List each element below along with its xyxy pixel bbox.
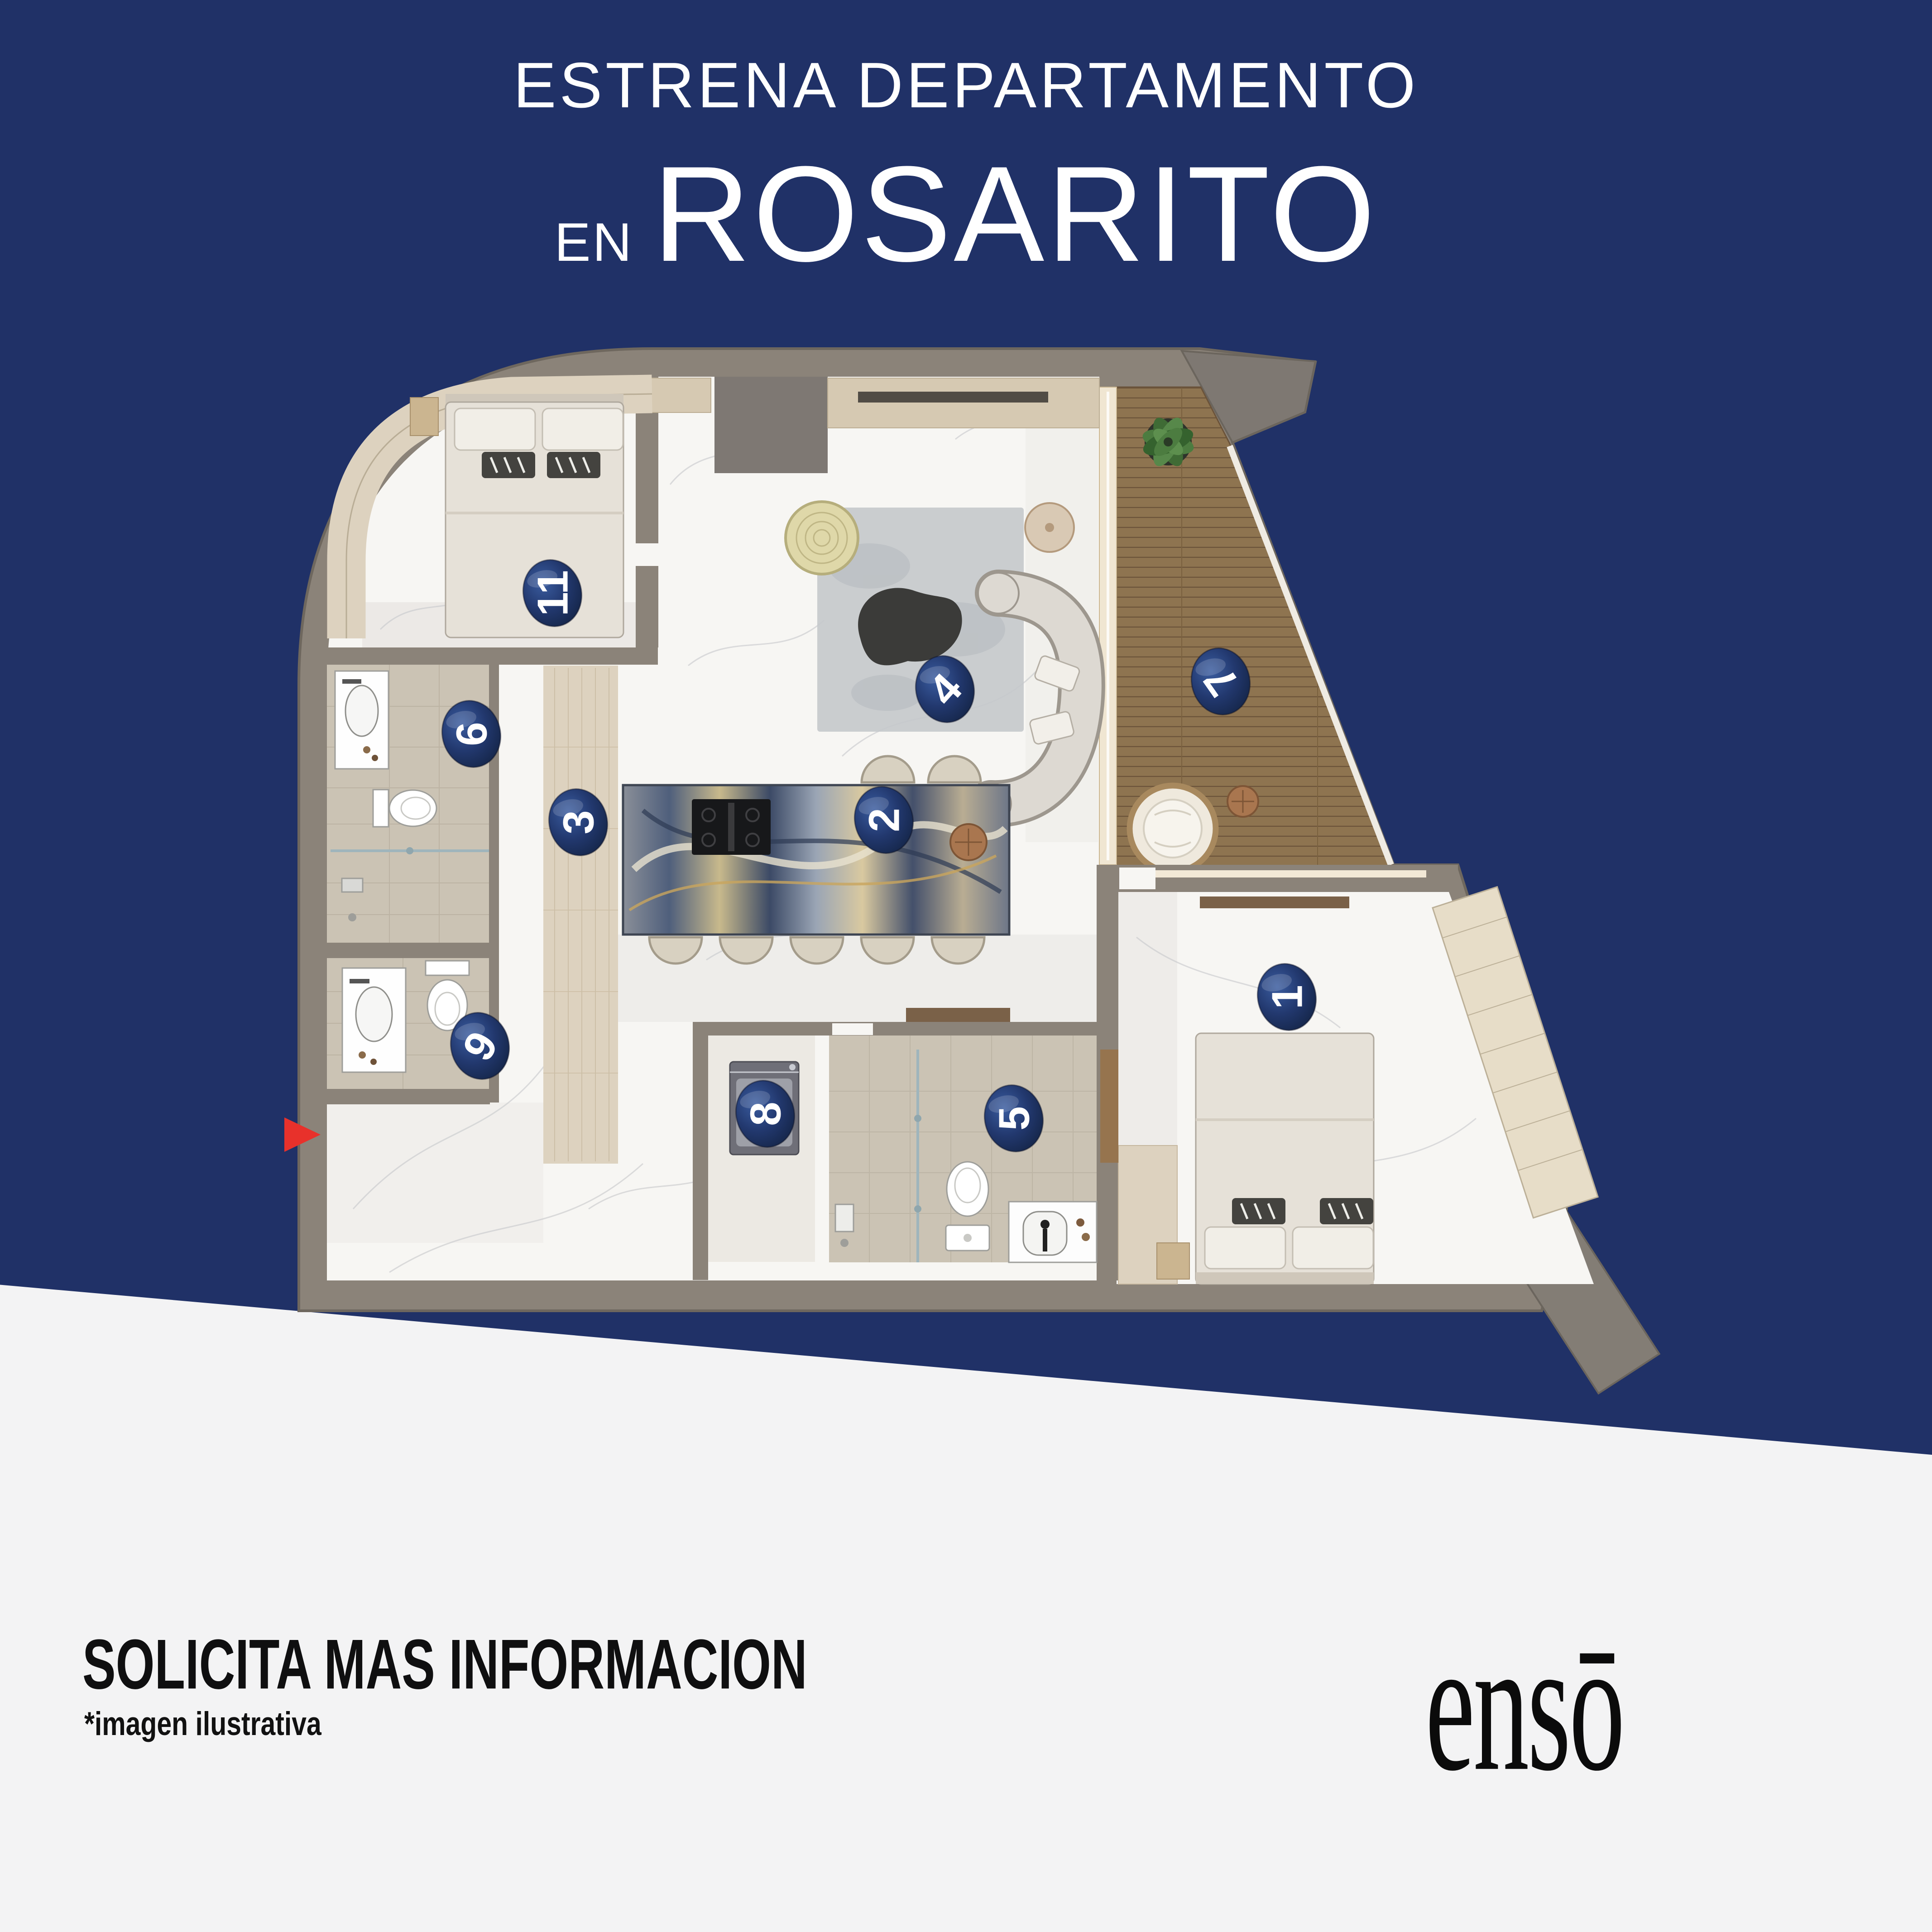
svg-text:11: 11 bbox=[529, 570, 577, 616]
title-line1: ESTRENA DEPARTAMENTO bbox=[0, 53, 1932, 118]
vanity bbox=[1009, 1202, 1097, 1262]
title-block: ESTRENA DEPARTAMENTO EN ROSARITO bbox=[0, 53, 1932, 282]
svg-text:2: 2 bbox=[860, 808, 909, 832]
serving-board bbox=[950, 824, 987, 860]
svg-text:1: 1 bbox=[1263, 985, 1312, 1009]
toilet bbox=[373, 790, 436, 827]
coffee-table bbox=[1025, 503, 1074, 552]
floorplan: 12345678911 bbox=[299, 349, 1657, 1390]
bedroom-window-band bbox=[1155, 870, 1426, 877]
svg-text:6: 6 bbox=[448, 722, 496, 746]
rattan-rug bbox=[786, 502, 858, 574]
nightstand bbox=[1157, 1243, 1189, 1279]
title-city: ROSARITO bbox=[652, 146, 1377, 282]
tv bbox=[858, 392, 1048, 403]
bathroom-5 bbox=[829, 1036, 1097, 1262]
title-line2: EN ROSARITO bbox=[0, 146, 1932, 282]
cooktop bbox=[692, 799, 771, 855]
cta-text: SOLICITA MAS INFORMACION bbox=[82, 1629, 807, 1700]
deck-chair bbox=[1130, 786, 1216, 872]
entrance-arrow-icon bbox=[284, 1117, 321, 1152]
kitchen-island bbox=[623, 756, 1009, 964]
bath5-door-gap bbox=[832, 1023, 873, 1035]
title-prefix: EN bbox=[554, 215, 633, 269]
nightstand bbox=[410, 398, 438, 436]
hallway bbox=[543, 666, 618, 1164]
toilet bbox=[946, 1162, 989, 1251]
bedroom-console bbox=[1200, 896, 1349, 908]
disclaimer-text: *imagen ilustrativa bbox=[84, 1708, 321, 1741]
laundry bbox=[708, 1036, 815, 1262]
terrace-deck bbox=[1099, 387, 1394, 872]
deck-side-table bbox=[1227, 786, 1258, 817]
svg-text:3: 3 bbox=[555, 810, 603, 834]
brand-logo: ensō bbox=[1425, 1611, 1623, 1800]
kitchen-console bbox=[906, 1008, 1010, 1022]
svg-text:5: 5 bbox=[990, 1106, 1039, 1130]
sink bbox=[335, 671, 388, 769]
bedroom-door-gap bbox=[1119, 868, 1155, 889]
svg-text:8: 8 bbox=[742, 1102, 790, 1126]
sink bbox=[342, 968, 406, 1072]
